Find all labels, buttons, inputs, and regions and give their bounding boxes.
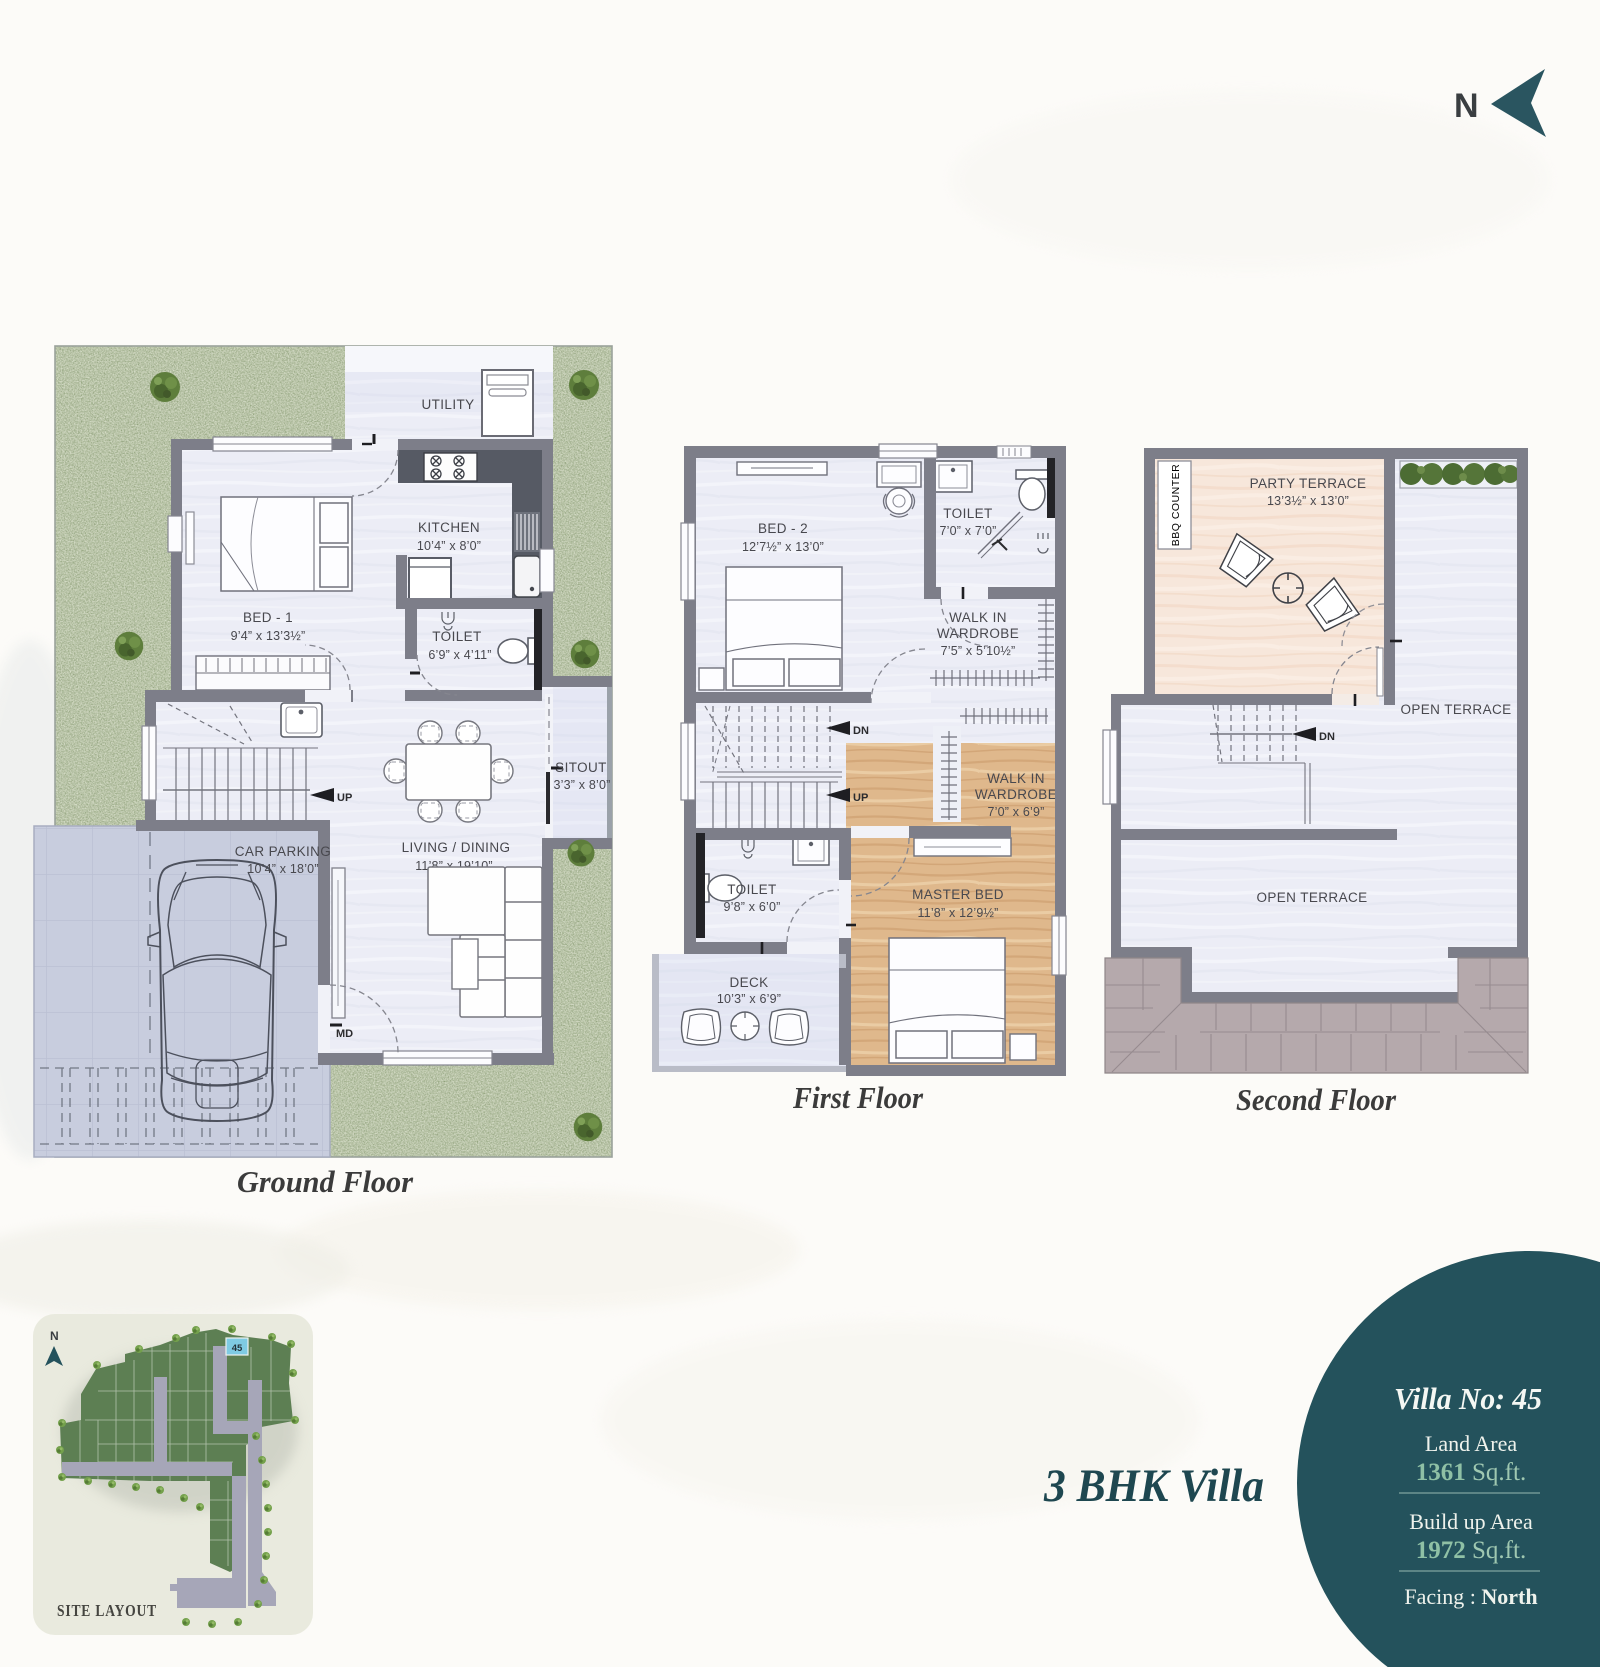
svg-text:BBQ COUNTER: BBQ COUNTER (1170, 464, 1182, 547)
svg-text:SITE LAYOUT: SITE LAYOUT (57, 1601, 157, 1620)
svg-text:13’3½” x 13’0”: 13’3½” x 13’0” (1267, 494, 1349, 508)
svg-text:9’4” x 13’3½”: 9’4” x 13’3½” (231, 629, 306, 643)
svg-text:10’4” x 8’0”: 10’4” x 8’0” (417, 539, 481, 553)
svg-text:DN: DN (1319, 731, 1335, 743)
svg-text:1361 Sq.ft.: 1361 Sq.ft. (1416, 1459, 1526, 1486)
svg-text:3’3” x 8’0”: 3’3” x 8’0” (553, 778, 610, 792)
svg-text:Build up Area: Build up Area (1409, 1509, 1533, 1534)
svg-text:N: N (50, 1329, 59, 1343)
svg-text:WARDROBE: WARDROBE (937, 626, 1019, 641)
svg-text:MD: MD (336, 1028, 353, 1040)
svg-text:UP: UP (853, 792, 868, 804)
svg-text:LIVING / DINING: LIVING / DINING (402, 840, 511, 855)
svg-text:OPEN TERRACE: OPEN TERRACE (1256, 890, 1367, 905)
svg-text:TOILET: TOILET (943, 506, 992, 521)
svg-text:9’8” x 6’0”: 9’8” x 6’0” (723, 900, 780, 914)
svg-text:CAR PARKING: CAR PARKING (235, 844, 331, 859)
svg-text:3 BHK Villa: 3 BHK Villa (1043, 1460, 1264, 1512)
svg-text:DN: DN (853, 725, 869, 737)
svg-text:BED - 1: BED - 1 (243, 610, 293, 625)
svg-text:7’0” x 7’0”: 7’0” x 7’0” (939, 524, 996, 538)
svg-text:7’0” x 6’9”: 7’0” x 6’9” (987, 805, 1044, 819)
svg-text:WARDROBE: WARDROBE (975, 787, 1057, 802)
svg-text:Villa No: 45: Villa No: 45 (1394, 1381, 1542, 1416)
svg-text:DECK: DECK (729, 975, 768, 990)
svg-text:12’7½” x 13’0”: 12’7½” x 13’0” (742, 540, 824, 554)
svg-text:UP: UP (337, 792, 352, 804)
svg-text:7’5” x 5’10½”: 7’5” x 5’10½” (941, 644, 1016, 658)
svg-text:Facing : North: Facing : North (1404, 1584, 1537, 1609)
svg-text:45: 45 (232, 1343, 243, 1354)
svg-text:BED - 2: BED - 2 (758, 521, 808, 536)
svg-text:TOILET: TOILET (432, 629, 481, 644)
svg-text:MASTER BED: MASTER BED (912, 887, 1004, 902)
svg-text:SITOUT: SITOUT (555, 760, 607, 775)
svg-text:1972 Sq.ft.: 1972 Sq.ft. (1416, 1537, 1526, 1564)
svg-text:6’9” x 4’11”: 6’9” x 4’11” (428, 648, 491, 662)
svg-text:Second Floor: Second Floor (1236, 1082, 1397, 1117)
svg-text:TOILET: TOILET (727, 882, 776, 897)
svg-text:First Floor: First Floor (792, 1080, 924, 1115)
svg-text:10’4” x 18’0”: 10’4” x 18’0” (247, 862, 318, 876)
svg-text:OPEN TERRACE: OPEN TERRACE (1400, 702, 1511, 717)
svg-text:KITCHEN: KITCHEN (418, 520, 480, 535)
svg-text:10’3” x 6’9”: 10’3” x 6’9” (717, 992, 781, 1006)
svg-text:UTILITY: UTILITY (421, 397, 474, 412)
svg-text:WALK IN: WALK IN (949, 610, 1007, 625)
svg-text:Land Area: Land Area (1425, 1431, 1517, 1456)
svg-text:N: N (1454, 87, 1479, 125)
svg-text:PARTY TERRACE: PARTY TERRACE (1250, 476, 1367, 491)
svg-text:WALK IN: WALK IN (987, 771, 1045, 786)
svg-text:11’8” x 12’9½”: 11’8” x 12’9½” (917, 906, 998, 920)
svg-text:Ground Floor: Ground Floor (237, 1164, 414, 1199)
